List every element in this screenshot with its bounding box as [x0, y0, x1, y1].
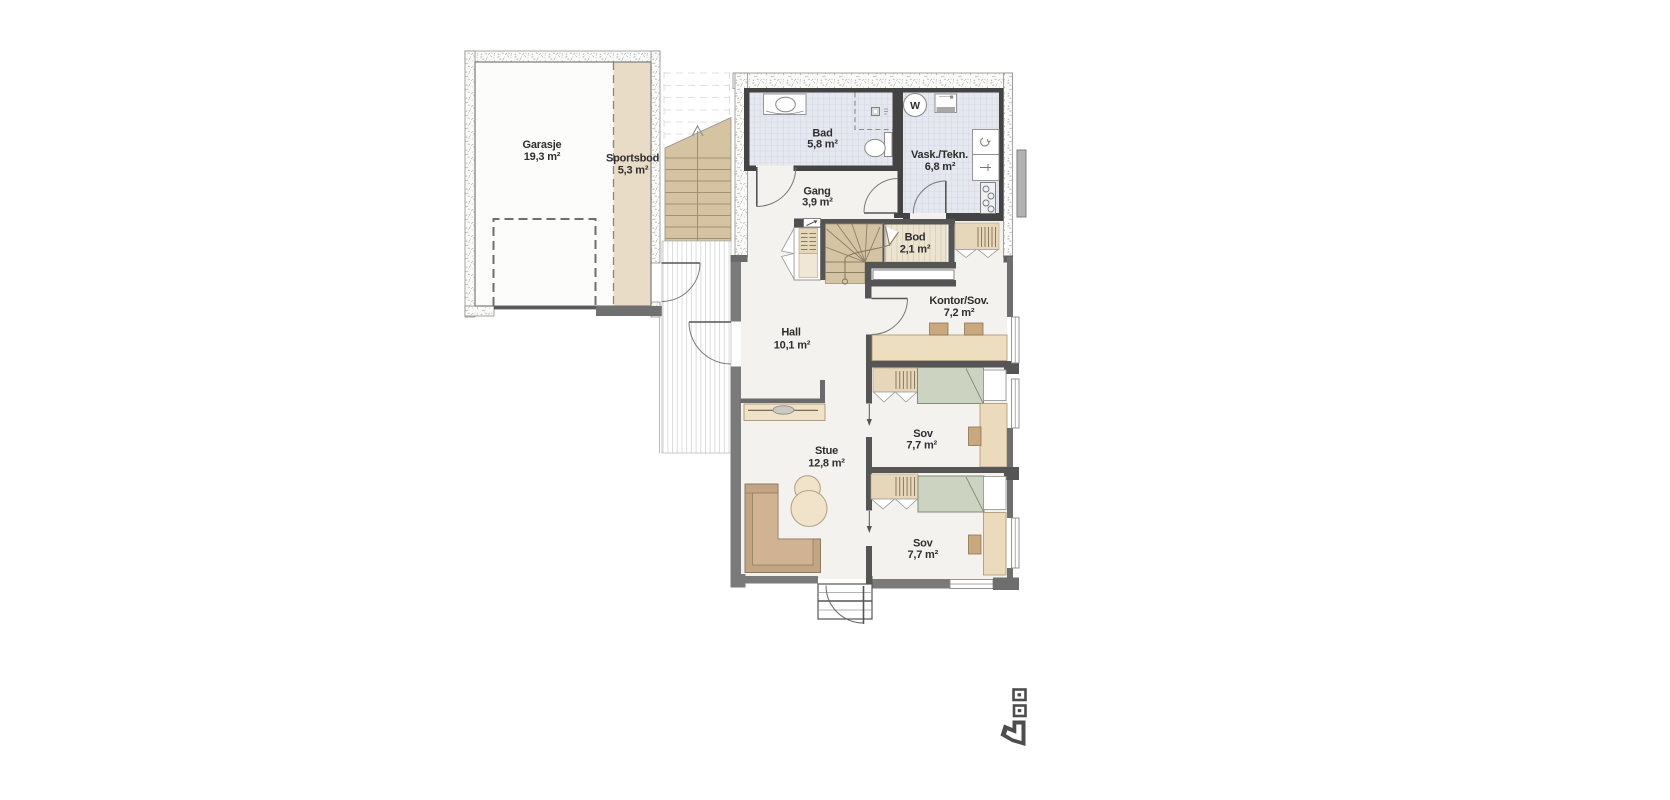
svg-text:5,8 m²: 5,8 m² — [807, 139, 838, 151]
svg-text:19,3 m²: 19,3 m² — [524, 151, 561, 163]
svg-text:Sov: Sov — [913, 537, 934, 549]
svg-text:7,7 m²: 7,7 m² — [908, 549, 939, 561]
svg-text:Kontor/Sov.: Kontor/Sov. — [929, 295, 988, 307]
svg-text:Sportsbod: Sportsbod — [606, 152, 659, 164]
svg-text:7,7 m²: 7,7 m² — [906, 439, 937, 451]
svg-text:Garasje: Garasje — [523, 139, 562, 151]
svg-text:5,3 m²: 5,3 m² — [618, 164, 649, 176]
svg-text:Bad: Bad — [812, 127, 832, 139]
svg-text:Bod: Bod — [905, 231, 926, 243]
svg-text:2,1 m²: 2,1 m² — [900, 243, 931, 255]
svg-text:3,9 m²: 3,9 m² — [802, 197, 833, 209]
svg-text:Gang: Gang — [803, 185, 830, 197]
svg-text:10,1 m²: 10,1 m² — [774, 339, 811, 351]
svg-text:Stue: Stue — [815, 445, 838, 457]
svg-text:W: W — [910, 100, 920, 112]
svg-text:Vask./Tekn.: Vask./Tekn. — [911, 149, 968, 161]
svg-text:6,8 m²: 6,8 m² — [925, 161, 956, 173]
svg-text:7,2 m²: 7,2 m² — [944, 307, 975, 319]
svg-text:12,8 m²: 12,8 m² — [808, 457, 845, 469]
svg-text:Hall: Hall — [781, 327, 801, 339]
svg-text:Sov: Sov — [913, 428, 934, 440]
